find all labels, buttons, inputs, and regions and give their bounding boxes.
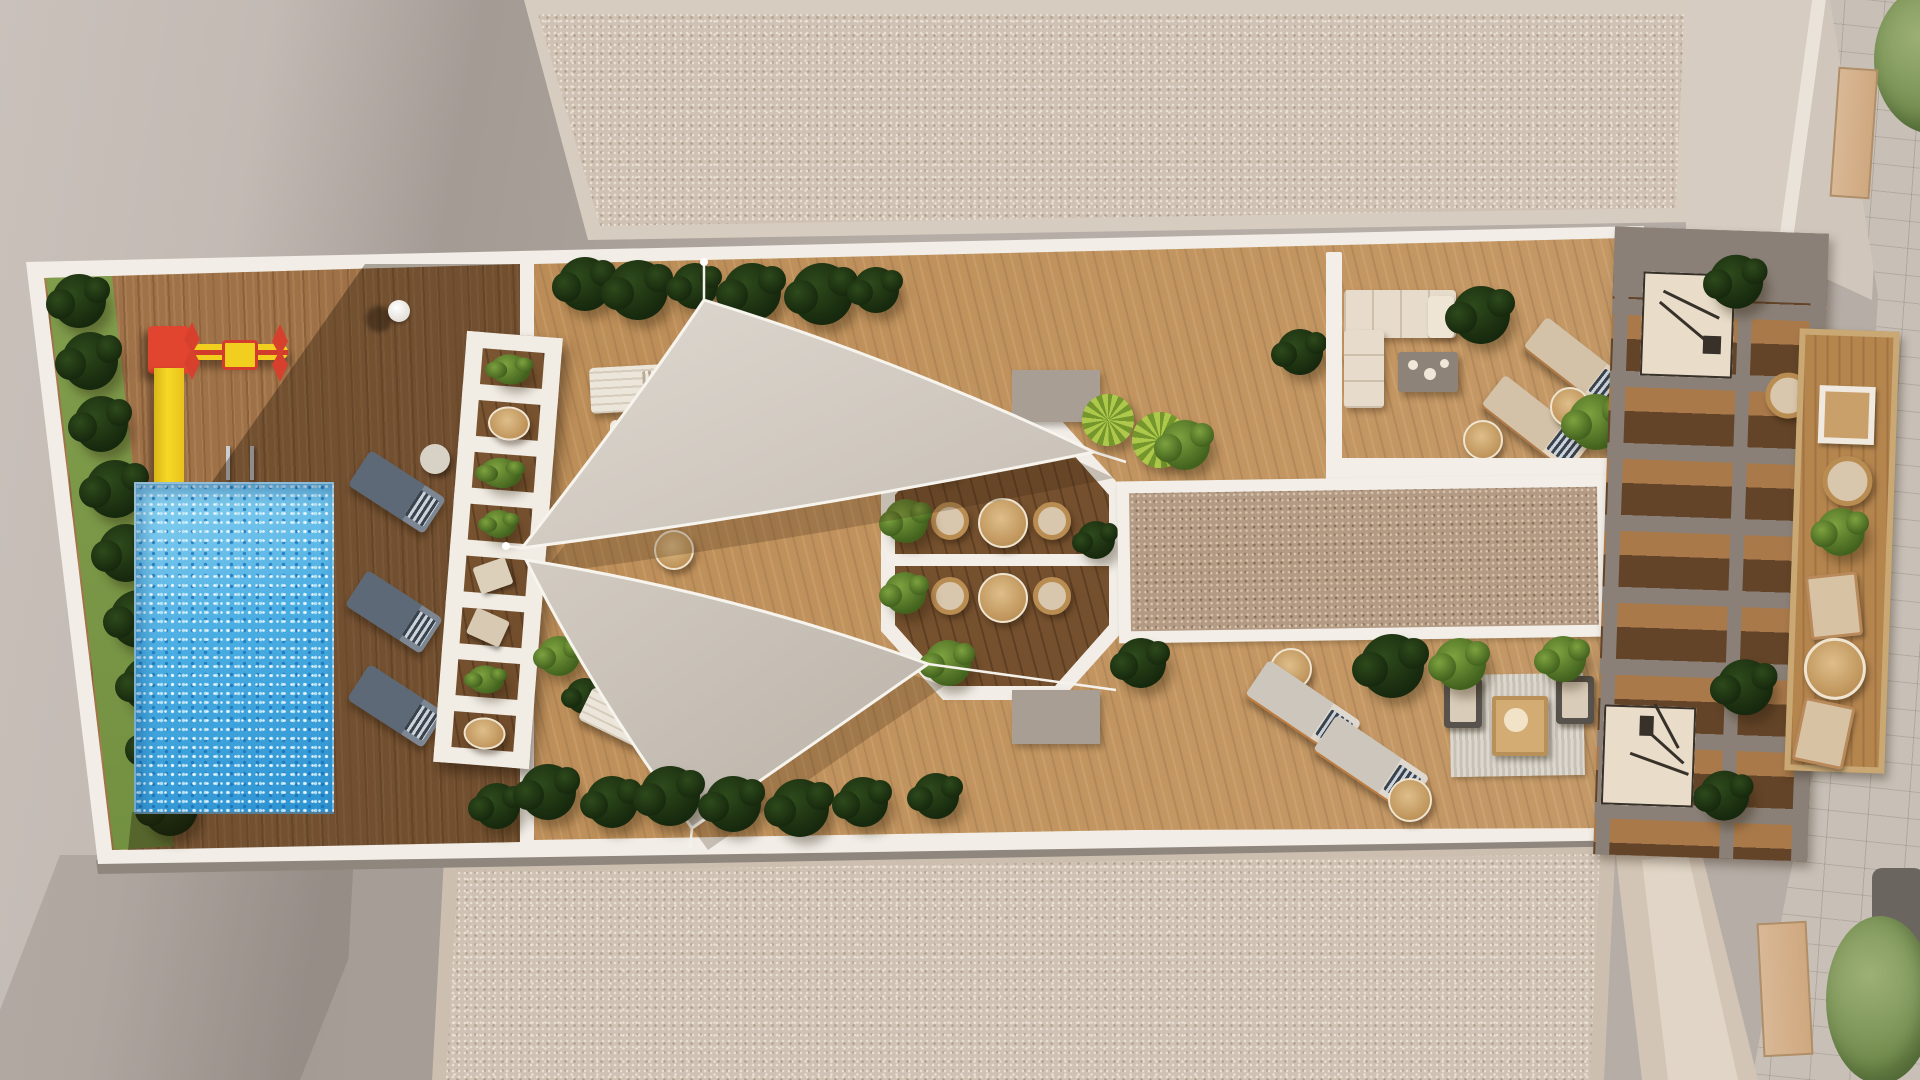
side-table [1388,778,1432,822]
border-bush [838,777,888,827]
border-bush [913,773,959,819]
armchair [1556,676,1594,724]
palm-plant [1082,394,1134,446]
pergola-plant [1716,658,1774,716]
rug-coffee-table [1492,696,1548,756]
walk-divider [1326,252,1342,490]
rattan-chair [1822,455,1874,507]
rattan-table-large [1803,637,1867,701]
framed-table [1818,385,1876,445]
deck-plant [1434,638,1486,690]
deck-plant [1540,636,1586,682]
border-bush [771,779,829,837]
rattan-lounger [1792,697,1856,770]
border-bush [520,764,576,820]
deck-plant [1360,634,1424,698]
rooftop-render [0,0,1920,1080]
side-table [1463,420,1503,460]
deck-plant [1116,638,1166,688]
gravel-strip-frame [1117,475,1611,644]
rattan-lounger [1805,571,1863,640]
gravel-strip-surface [1129,487,1599,632]
coffee-table [1398,352,1458,392]
border-bush [705,776,761,832]
side-terrace [1784,328,1899,773]
border-bush [586,776,638,828]
pergola-plant [1698,770,1750,822]
border-bush [640,766,700,826]
corner-sofa-side [1344,330,1384,408]
deck-plant [1160,420,1210,470]
deck-plant [1452,286,1510,344]
deck-plant [1277,329,1323,375]
terrace-plant [1816,507,1866,557]
staircase-bottom [1601,704,1696,807]
